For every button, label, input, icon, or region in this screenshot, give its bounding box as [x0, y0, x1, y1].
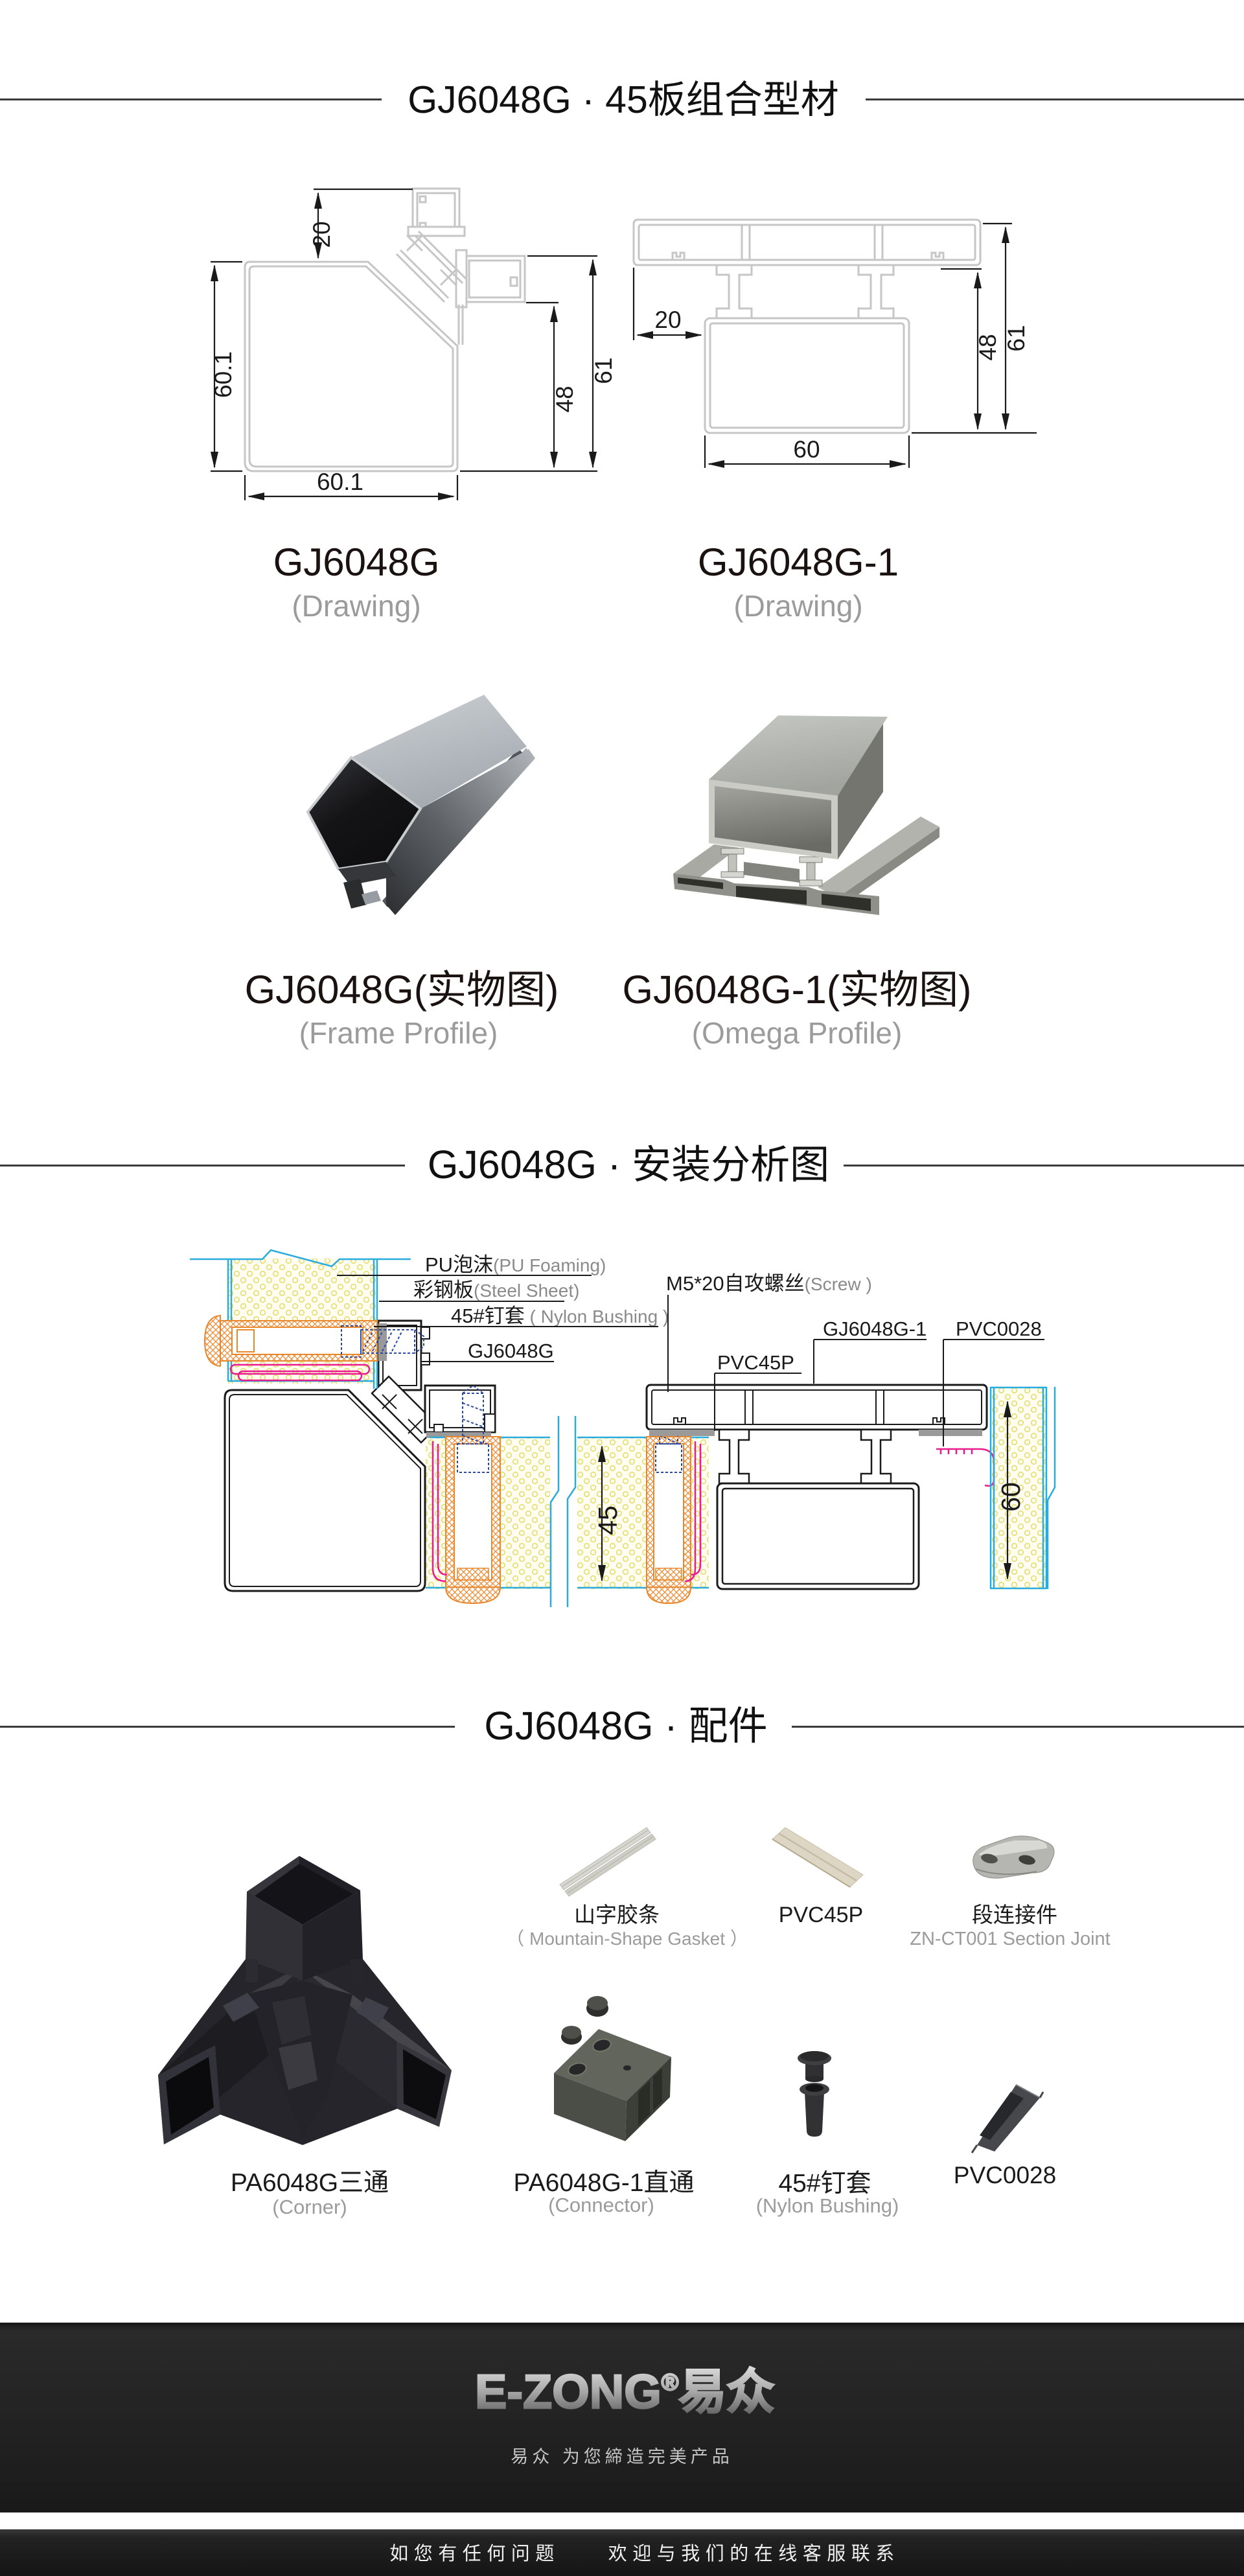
svg-text:（ Mountain-Shape Gasket ）: （ Mountain-Shape Gasket ）: [506, 1929, 748, 1949]
svg-text:45: 45: [593, 1505, 623, 1535]
svg-text:PVC0028: PVC0028: [954, 2162, 1056, 2188]
svg-text:(Corner): (Corner): [272, 2196, 347, 2218]
svg-text:(Frame Profile): (Frame Profile): [299, 1016, 498, 1050]
svg-text:如您有任何问题 欢迎与我们的在线客服联系: 如您有任何问题 欢迎与我们的在线客服联系: [389, 2543, 900, 2564]
svg-text:20: 20: [654, 307, 681, 333]
svg-text:易众 为您締造完美产品: 易众 为您締造完美产品: [511, 2447, 733, 2466]
svg-text:61: 61: [1003, 325, 1030, 351]
svg-text:GJ6048G: GJ6048G: [273, 540, 440, 584]
svg-text:60: 60: [996, 1482, 1026, 1512]
svg-text:45#钉套 ( Nylon Bushing ): 45#钉套 ( Nylon Bushing ): [451, 1305, 669, 1327]
svg-text:(Drawing): (Drawing): [733, 589, 862, 623]
svg-text:(Drawing): (Drawing): [292, 589, 420, 623]
svg-text:GJ6048G · 配件: GJ6048G · 配件: [484, 1704, 767, 1748]
svg-text:GJ6048G: GJ6048G: [468, 1340, 554, 1362]
svg-text:PVC45P: PVC45P: [717, 1351, 794, 1374]
svg-text:60: 60: [793, 436, 820, 463]
svg-text:60.1: 60.1: [210, 351, 236, 398]
svg-text:E-ZONG®易众: E-ZONG®易众: [475, 2365, 774, 2419]
svg-text:PU泡沫(PU Foaming): PU泡沫(PU Foaming): [425, 1253, 606, 1276]
svg-text:GJ6048G(实物图): GJ6048G(实物图): [245, 968, 559, 1012]
svg-text:(Nylon Bushing): (Nylon Bushing): [756, 2194, 899, 2217]
svg-text:彩钢板(Steel Sheet): 彩钢板(Steel Sheet): [413, 1279, 579, 1301]
svg-text:GJ6048G-1(实物图): GJ6048G-1(实物图): [623, 968, 972, 1012]
svg-text:山字胶条: 山字胶条: [574, 1903, 660, 1927]
svg-text:PA6048G-1直通: PA6048G-1直通: [514, 2169, 695, 2197]
svg-text:PVC45P: PVC45P: [779, 1903, 863, 1927]
svg-text:ZN-CT001 Section Joint: ZN-CT001 Section Joint: [910, 1929, 1110, 1949]
svg-text:M5*20自攻螺丝(Screw ): M5*20自攻螺丝(Screw ): [666, 1272, 872, 1295]
svg-text:20: 20: [308, 221, 335, 248]
svg-text:GJ6048G · 安装分析图: GJ6048G · 安装分析图: [428, 1143, 829, 1187]
svg-text:(Omega Profile): (Omega Profile): [692, 1016, 903, 1050]
svg-text:GJ6048G · 45板组合型材: GJ6048G · 45板组合型材: [408, 78, 839, 121]
svg-text:48: 48: [551, 386, 578, 412]
svg-text:61: 61: [590, 357, 617, 384]
svg-text:(Connector): (Connector): [548, 2194, 654, 2216]
svg-text:45#钉套: 45#钉套: [778, 2170, 871, 2198]
svg-text:PVC0028: PVC0028: [956, 1317, 1042, 1340]
svg-text:GJ6048G-1: GJ6048G-1: [823, 1317, 927, 1340]
svg-text:GJ6048G-1: GJ6048G-1: [698, 540, 899, 584]
svg-text:段连接件: 段连接件: [972, 1903, 1057, 1927]
svg-text:60.1: 60.1: [317, 469, 363, 495]
svg-text:48: 48: [974, 334, 1001, 360]
svg-text:PA6048G三通: PA6048G三通: [231, 2169, 389, 2197]
